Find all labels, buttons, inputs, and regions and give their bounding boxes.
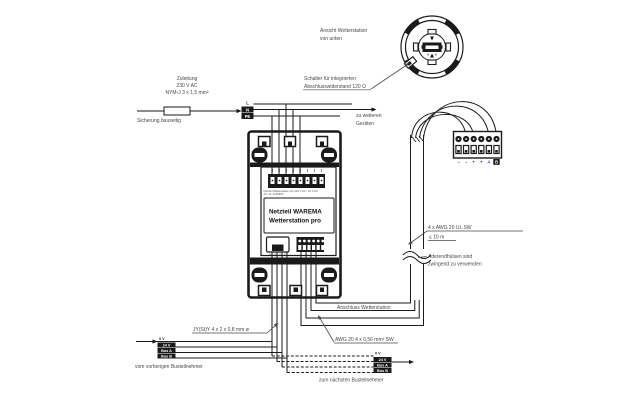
label-l: L — [246, 101, 249, 106]
power-supply-device: Netzteil Wetterstation pro 230 V AC / 24… — [249, 132, 341, 298]
awg-ul-arrowhead — [408, 241, 413, 245]
cable-sheath-hatch — [412, 136, 423, 142]
wiring-diagram-page: Netzteil Wetterstation pro 230 V AC / 24… — [0, 0, 634, 402]
connector-label-plus1: + — [472, 160, 475, 165]
label-vom-vorherigen: vom vorherigen Busteilnehmer — [135, 364, 203, 370]
label-awg-ul-line2: ≤ 10 m — [429, 235, 444, 241]
label-ansicht-line2: von unten — [320, 36, 342, 42]
feed-arrowhead — [237, 109, 242, 113]
label-anschluss-wetterstation: Anschluss Wetterstation — [337, 305, 391, 311]
label-zuleitung-line3: NYM-J 3 x 1,5 mm² — [165, 90, 208, 96]
connector-labels: − − + + A B — [457, 159, 499, 165]
further-devices-arrowhead — [372, 107, 377, 111]
label-pe: PE — [245, 114, 251, 119]
connector-label-a: A — [487, 160, 490, 165]
fuse-symbol — [164, 107, 190, 115]
label-n: N — [246, 107, 249, 112]
label-schalter-line1: Schalter für integrierten — [304, 76, 356, 82]
awg-sw-arrowhead — [318, 315, 322, 320]
label-ansicht-line1: Ansicht Wetterstation — [320, 28, 367, 34]
label-zuleitung-line2: 230 V AC — [176, 83, 198, 89]
connector-label-minus2: − — [465, 160, 468, 165]
label-sicherung: Sicherung bauseitig — [137, 118, 181, 124]
device-bottom-ridge — [250, 258, 339, 265]
bus-left-24v: 24 V — [163, 344, 171, 348]
station-terminal-strip — [297, 237, 325, 252]
connector-label-plus2: + — [480, 160, 483, 165]
bus-labels-right: 0 V 24 V Bus A Bus B — [374, 352, 392, 373]
label-schalter-line2: Abschlusswiderstand 120 Ω — [304, 84, 366, 90]
label-zu-weiteren-line2: Geräten — [356, 121, 374, 127]
weather-station-bottom-view: Ansicht Wetterstation von unten Schalter… — [303, 16, 463, 90]
label-aderendhuelsen-line1: Aderendhülsen sind — [428, 254, 472, 260]
bus-left-busa: Bus A — [161, 349, 172, 353]
bus-right-0v: 0 V — [375, 352, 381, 356]
bus-in-arrowhead — [153, 339, 158, 343]
label-zu-weiteren-line1: zu weiteren — [356, 113, 382, 119]
device-top-ridge — [250, 163, 339, 168]
bus-left-0v: 0 V — [159, 337, 165, 341]
device-fine-print-line2: Art.-Nr. 2039930 — [264, 192, 284, 196]
device-name-line2: Wetterstation pro — [269, 218, 321, 225]
label-awg-sw: AWG 20 4 x 0,56 mm² SW — [335, 337, 394, 343]
bus-right-24v: 24 V — [379, 358, 387, 362]
station-connector: − − + + A B — [412, 102, 502, 165]
device-fine-print-line1: Netzteil Wetterstation pro 230 V AC / 24… — [264, 189, 319, 193]
bus-right-busa: Bus A — [377, 364, 388, 368]
connector-label-minus1: − — [457, 160, 460, 165]
label-jysty: JY(St)Y 4 x 2 x 0,8 mm ø — [193, 327, 249, 333]
label-aderendhuelsen-line2: zwingend zu verwenden — [428, 262, 482, 268]
bus-right-busb: Bus B — [377, 369, 388, 373]
bus-out-arrowhead — [409, 360, 414, 364]
label-zuleitung-line1: Zuleitung — [177, 76, 198, 82]
connector-label-b: B — [495, 160, 498, 165]
device-name-line1: Netzteil WAREMA — [269, 209, 322, 216]
lnpe-terminal-block: L N PE — [242, 101, 254, 120]
wiring-diagram: Netzteil Wetterstation pro 230 V AC / 24… — [0, 0, 634, 402]
bus-labels-left: 0 V 24 V Bus A Bus B — [158, 337, 176, 359]
label-zum-naechsten: zum nächsten Busteilnehmer — [319, 378, 384, 384]
label-awg-ul-line1: 4 x AWG 20 UL SW — [428, 225, 472, 231]
device-name-plate — [264, 198, 334, 233]
bus-left-busb: Bus B — [161, 355, 172, 359]
